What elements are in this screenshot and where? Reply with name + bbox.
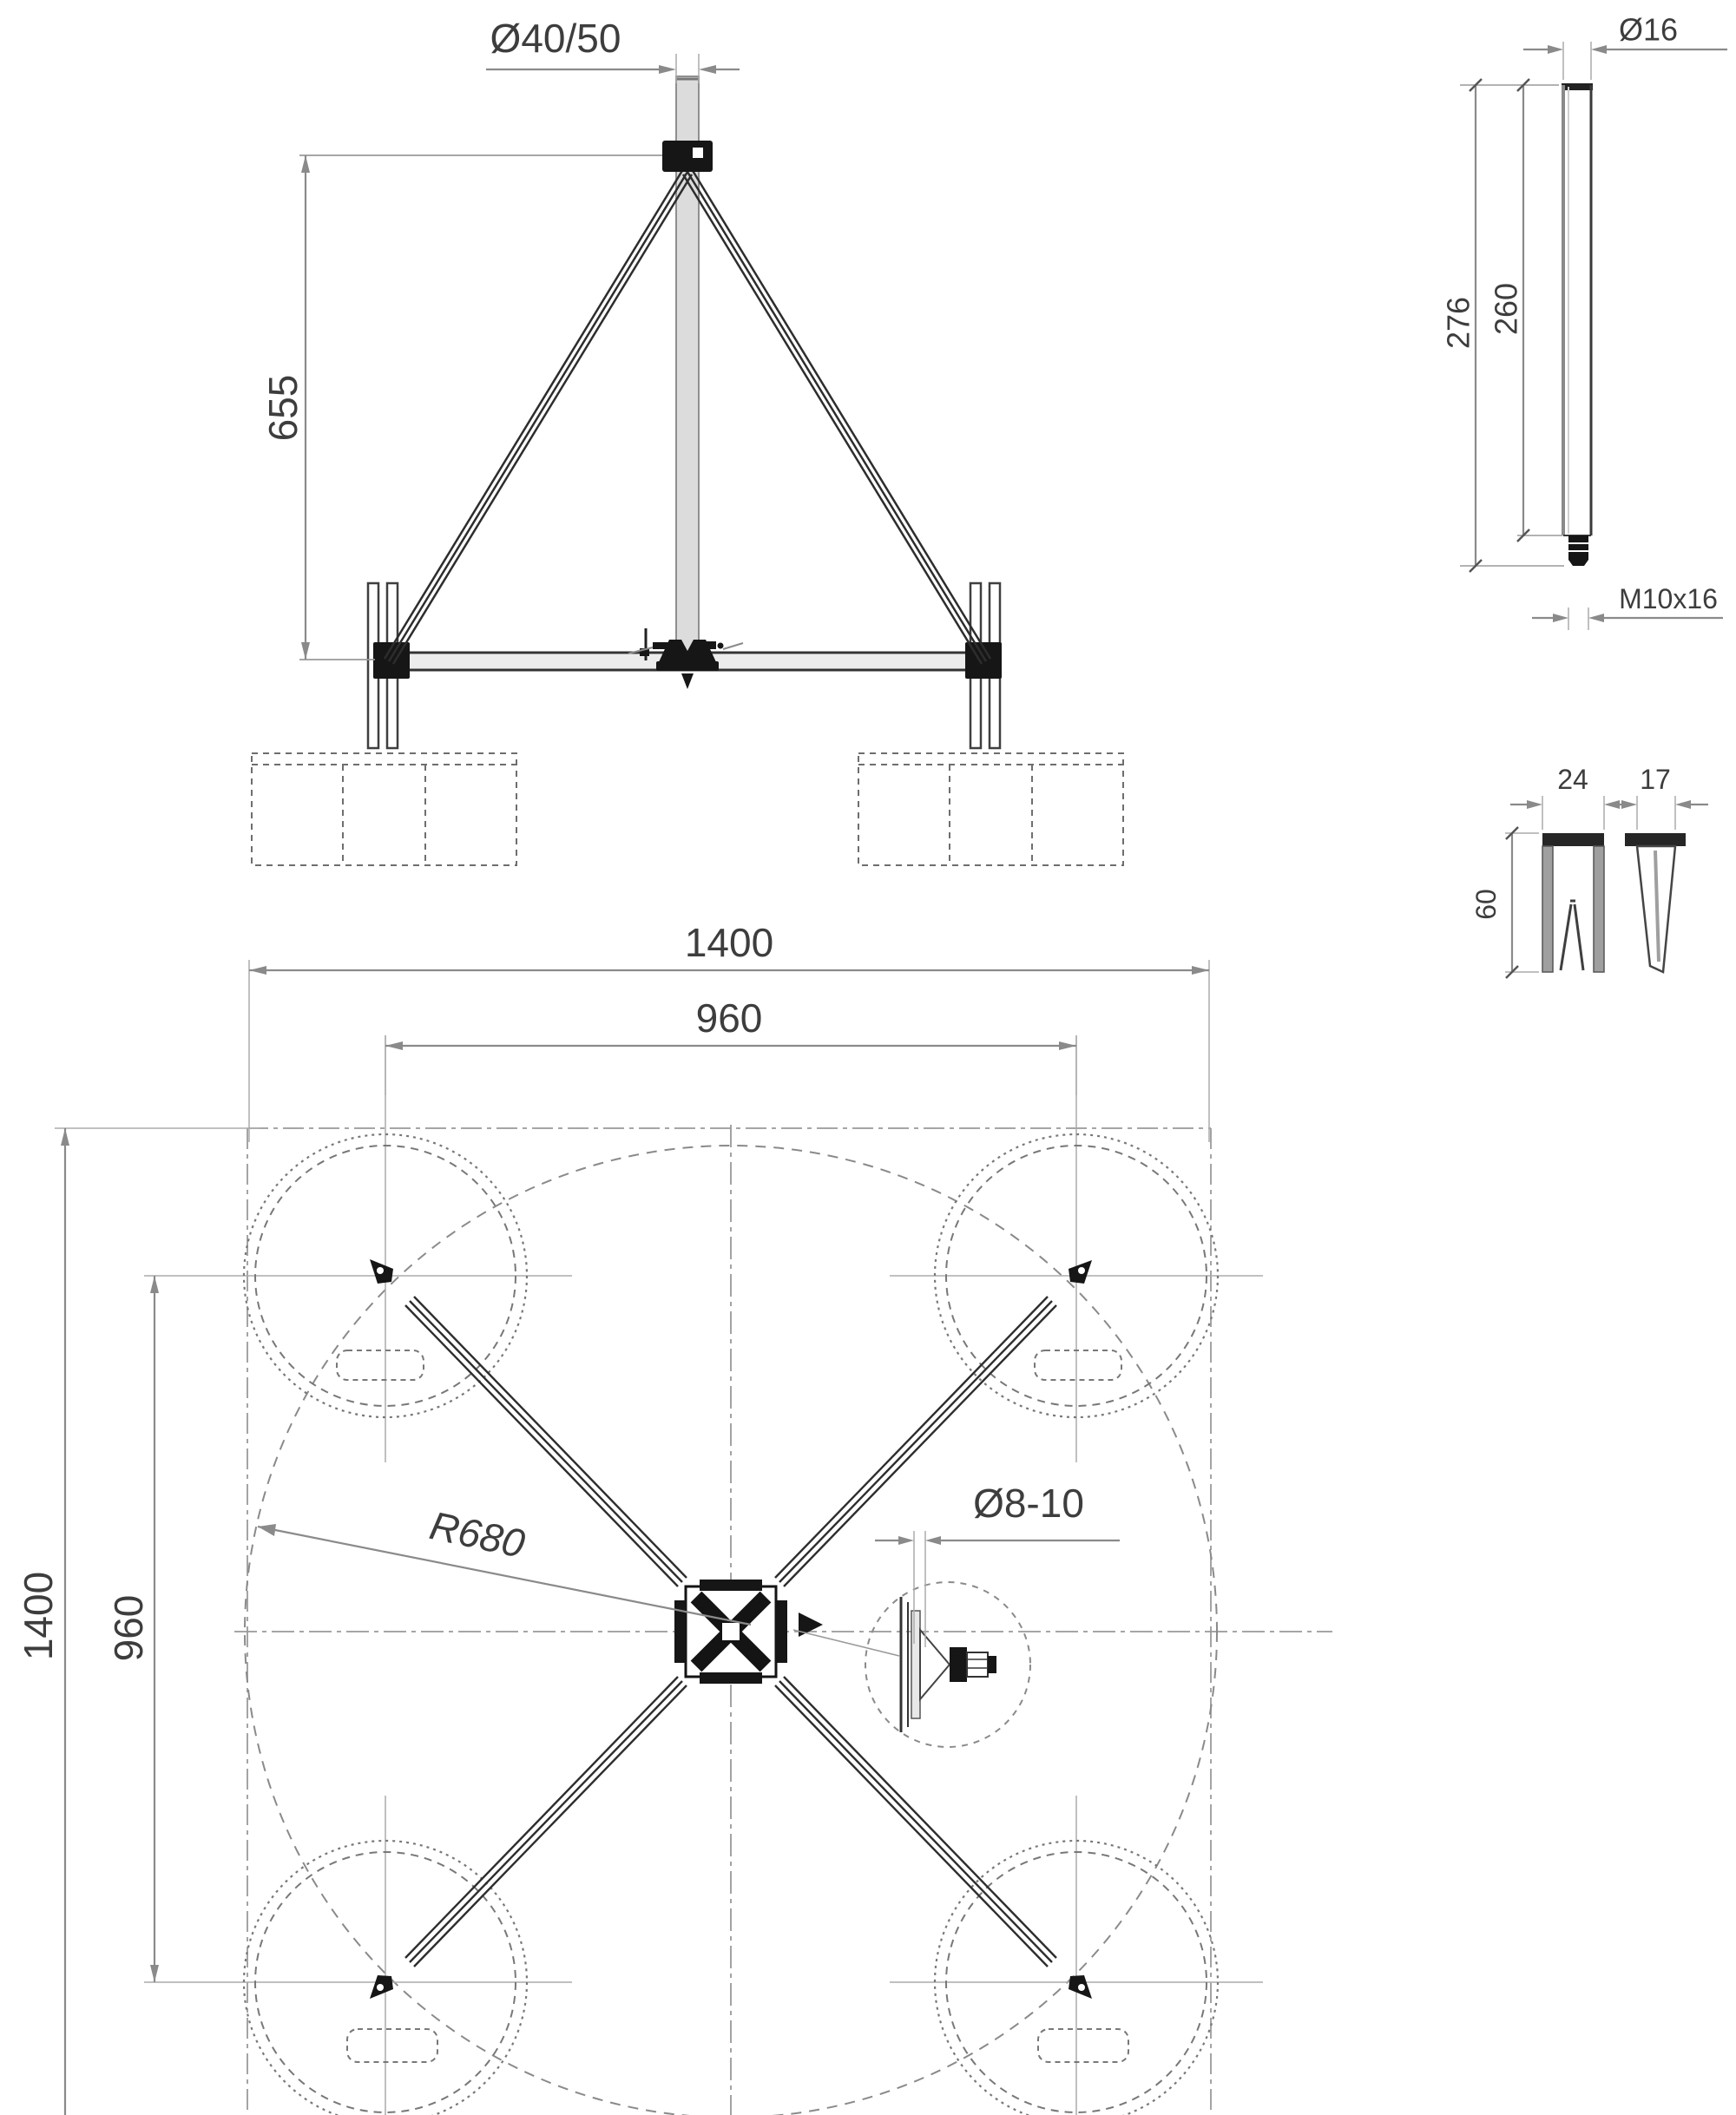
rod-thread-label: M10x16 (1619, 583, 1718, 614)
dimension-leg-span-v: 960 (106, 1276, 159, 1982)
plan-width-label: 1400 (685, 920, 773, 965)
anchor-channel (1542, 833, 1604, 972)
dimension-leg-span-h: 960 (385, 995, 1076, 1095)
anchor-blade (1625, 833, 1686, 972)
earth-rod-detail-view: Ø16 276 260 M10x16 (1441, 12, 1728, 631)
ground-anchor-detail-view: 24 17 60 (1470, 764, 1708, 978)
channel-width-label: 24 (1557, 764, 1588, 795)
dimension-anchor-depth: 60 (1470, 827, 1539, 978)
rod-body (1562, 83, 1593, 566)
anchor-depth-label: 60 (1470, 889, 1502, 920)
dimension-rod-shaft: 260 (1489, 79, 1563, 542)
mast-top-joint (662, 141, 713, 172)
plan-height-label: 1400 (16, 1572, 61, 1660)
front-elevation-view: Ø40/50 655 (252, 16, 1123, 865)
dimension-blade-width: 17 (1621, 764, 1708, 830)
dimension-rod-diameter: Ø16 (1523, 12, 1727, 81)
leg-span-h-label: 960 (696, 995, 763, 1041)
technical-drawing-page: Ø40/50 655 (0, 0, 1736, 2115)
paving-slab-right (858, 753, 1123, 865)
rod-overall-length-label: 276 (1441, 297, 1476, 349)
dimension-channel-width: 24 (1510, 764, 1630, 830)
plan-view: 1400 960 1400 960 R68 (16, 920, 1332, 2115)
conductor-diameter-label: Ø8-10 (973, 1481, 1084, 1526)
dimension-height-655: 655 (260, 155, 662, 660)
dimension-mast-diameter: Ø40/50 (486, 16, 740, 83)
height-label: 655 (260, 375, 306, 442)
slab-grips (337, 1350, 1128, 2062)
slab-radius-label: R680 (426, 1502, 529, 1567)
leg-span-v-label: 960 (106, 1595, 151, 1662)
rod-shaft-length-label: 260 (1489, 283, 1524, 335)
tripod-stand-drawing: Ø40/50 655 (0, 0, 1736, 2115)
mast-diameter-label: Ø40/50 (490, 16, 621, 61)
rod-diameter-label: Ø16 (1619, 12, 1678, 48)
dimension-rod-thread: M10x16 (1532, 583, 1723, 630)
blade-width-label: 17 (1640, 764, 1671, 795)
paving-slab-left (252, 753, 516, 865)
